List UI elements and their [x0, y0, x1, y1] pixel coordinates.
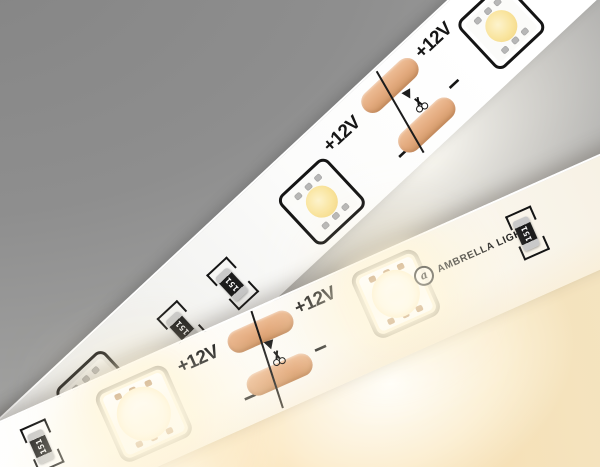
led-pin: [321, 221, 330, 230]
resistor: 151: [200, 254, 262, 316]
led-pin: [91, 365, 100, 374]
led-pin: [493, 0, 502, 7]
resistor-body: 151: [511, 216, 540, 252]
led-pin: [501, 45, 510, 54]
plus-12v-label: +12V: [291, 282, 339, 320]
led-pin: [473, 16, 482, 25]
minus-label: −: [445, 75, 465, 95]
cut-arrow-icon: [264, 339, 276, 351]
led-pin: [294, 191, 303, 200]
brand-logo-glyph: a: [418, 268, 430, 283]
minus-label: −: [312, 340, 330, 358]
resistor: 151: [12, 417, 68, 467]
resistor-body: 151: [26, 429, 55, 465]
resistor: 151: [498, 204, 554, 264]
product-photo-led-strips: 151 151: [0, 0, 600, 467]
resistor-code: 151: [22, 432, 58, 461]
resistor-code: 151: [508, 220, 544, 249]
led-pin: [521, 27, 530, 36]
led-pin: [134, 440, 143, 448]
